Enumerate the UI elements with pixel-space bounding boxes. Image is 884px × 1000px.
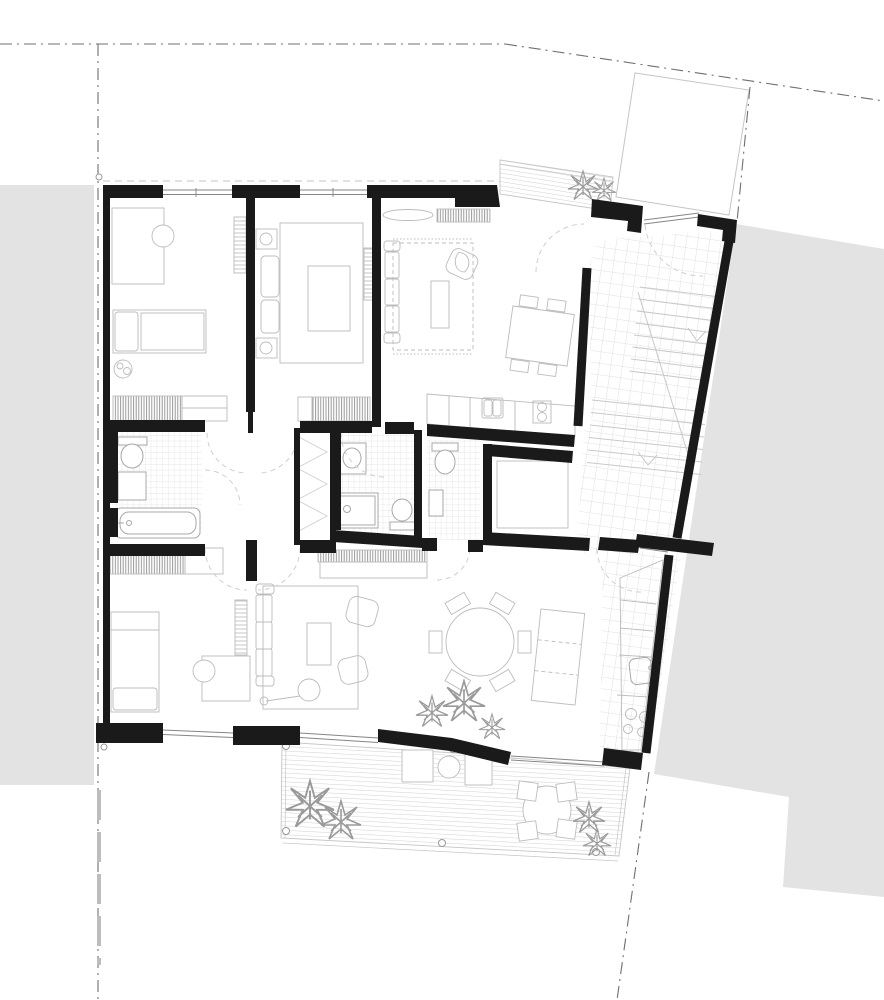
survey-marker [96, 174, 102, 180]
chair [445, 592, 471, 614]
small-basin [429, 490, 443, 516]
round-dining-table [446, 608, 514, 676]
chair [489, 669, 515, 691]
floor-plant-detail [117, 363, 123, 369]
bed-blanket [308, 266, 350, 331]
burner [538, 403, 547, 412]
wall-bathroom-middle [414, 430, 422, 543]
door-swing-arc [205, 548, 247, 590]
nightstand [256, 338, 277, 358]
storage-room [497, 461, 568, 528]
chair [518, 631, 531, 653]
sideboard-hatched [437, 209, 490, 222]
wall-south-pier [96, 723, 163, 743]
corridor-closet [297, 436, 327, 532]
plant-icon [479, 714, 505, 739]
wall-west [103, 198, 110, 743]
sofa-cushion [385, 306, 399, 332]
floor-plan-canvas [0, 0, 884, 1000]
plant-icon [416, 696, 448, 726]
shower [335, 493, 378, 528]
wall-north-pier [103, 185, 163, 198]
sofa-armrest [256, 676, 274, 686]
terrace-chair [517, 821, 538, 841]
wall-bedroom-divider [246, 198, 255, 412]
window-south [163, 735, 233, 738]
wall-closet [294, 428, 300, 545]
terrace-chair [556, 819, 577, 839]
armchair-pillow [451, 251, 472, 273]
terrace-chair [402, 750, 433, 782]
washing-machine [118, 472, 146, 500]
wall-living-divider [372, 198, 381, 427]
sink-bowl [484, 400, 492, 416]
island-division [534, 671, 578, 676]
entrance-door-line [644, 213, 699, 220]
wall-north-pier [232, 185, 300, 198]
neighbor-building-west [0, 185, 94, 785]
pillow [261, 256, 279, 297]
armchair [344, 595, 380, 629]
wall-stairwell-west [578, 268, 587, 426]
dining-area-lower [416, 592, 585, 738]
nightstand [256, 229, 277, 249]
sofa-armrest [384, 333, 400, 343]
wall-bathroom-west [110, 432, 118, 503]
floor-lamp-arm [266, 696, 300, 701]
single-bed [111, 612, 159, 712]
wall-corridor-north [110, 420, 205, 432]
desk [112, 208, 164, 284]
single-bed [113, 310, 206, 353]
kitchen-island [531, 609, 584, 705]
wall-wc-south [422, 538, 437, 551]
island-body [531, 609, 584, 705]
sideboard-decor [383, 210, 433, 221]
living-room-lower [256, 550, 427, 709]
chair [547, 299, 566, 312]
coffee-table [307, 623, 331, 665]
wall-shelf [234, 217, 246, 273]
wardrobe-shelves [298, 397, 312, 421]
post [283, 828, 290, 835]
boundary-line-northeast [505, 44, 884, 101]
wall-door-stub [248, 412, 253, 433]
floor-plant [114, 360, 132, 378]
window-south [300, 733, 378, 738]
wall-north-pier [367, 185, 420, 198]
wall-entrance [591, 199, 643, 233]
bedroom-north-middle [256, 223, 376, 421]
bed-blanket [141, 313, 204, 350]
double-bed [280, 223, 363, 363]
chair [510, 359, 529, 372]
toilet-tank [390, 522, 416, 530]
pillow [115, 312, 138, 351]
chair [489, 592, 515, 614]
dining-table-upper [504, 294, 576, 378]
armchair [336, 654, 369, 686]
window-south [300, 738, 378, 743]
pillow [261, 300, 279, 333]
floor-lamp-shade [298, 679, 320, 701]
living-room-upper [383, 209, 576, 378]
lamp [260, 342, 272, 354]
sofa-cushion [385, 279, 399, 305]
lamp [260, 233, 272, 245]
neighbor-outline-northeast [616, 73, 749, 215]
door-swing-arc [437, 549, 470, 580]
toilet-icon [121, 444, 143, 468]
sofa-cushion [256, 595, 272, 622]
pillow [113, 688, 157, 710]
kitchen-sink [482, 398, 503, 418]
wardrobe-shelves [182, 396, 227, 421]
wall-storage-south [483, 532, 590, 551]
door-swing-arc [536, 224, 584, 272]
survey-marker [101, 744, 107, 750]
bedroom-southwest [110, 548, 250, 712]
wall-north-step [420, 185, 500, 207]
armchair-seat [444, 246, 480, 281]
table [506, 306, 575, 366]
sofa-cushion [256, 622, 272, 649]
wardrobe-hatched [113, 396, 182, 421]
wall-storage-north [487, 444, 573, 463]
desk-chair [152, 225, 174, 247]
closet-rail-symbol [297, 436, 327, 532]
chair [429, 631, 442, 653]
wall-bedroom-south-north [110, 544, 205, 556]
chair [519, 295, 538, 308]
storage-shelf [497, 461, 568, 528]
post [439, 840, 446, 847]
floor-plan-drawing [0, 0, 884, 1000]
wall-bathroom-middle [333, 430, 341, 530]
rug [263, 586, 358, 709]
terrace-side-table [438, 756, 460, 778]
bedroom-northwest [112, 208, 246, 421]
door-swing-arc [205, 470, 240, 505]
desk-chair [193, 660, 215, 682]
wall-door-stub [246, 540, 257, 581]
sideboard [320, 562, 427, 578]
toilet-icon [392, 499, 412, 521]
sofa-cushion [385, 252, 399, 278]
wardrobe-hatched [312, 397, 370, 421]
wall-living-lower-north [300, 540, 336, 553]
wall-bathroom-middle-north [385, 422, 414, 434]
toilet-icon [435, 450, 455, 474]
dining-chairs [429, 592, 531, 691]
wall-bathroom-west [110, 508, 118, 537]
island-division [538, 640, 582, 645]
sink-bowl [493, 400, 501, 416]
door-swing-arc [258, 433, 298, 473]
coffee-table [431, 281, 449, 328]
wall-storage-west [483, 444, 492, 534]
sofa-armrest [384, 241, 400, 251]
terrace-chair [556, 782, 577, 802]
sofa-cushion [256, 649, 272, 676]
terrace-chair [517, 781, 538, 801]
window-south [163, 730, 233, 733]
wall-wc-south [468, 540, 483, 552]
wall-shelf [235, 600, 247, 655]
armchair [444, 246, 480, 281]
cooktop [533, 401, 551, 423]
rug [393, 243, 473, 350]
armchair-seat [336, 654, 369, 686]
chair [538, 363, 557, 376]
burner [538, 413, 547, 422]
wall-south-pier [233, 726, 300, 745]
plant-icon [443, 681, 485, 721]
entrance-door-line [644, 217, 699, 224]
door-swing-arc [207, 433, 247, 473]
floor-plant-detail [124, 368, 131, 375]
armchair-seat [344, 595, 380, 629]
